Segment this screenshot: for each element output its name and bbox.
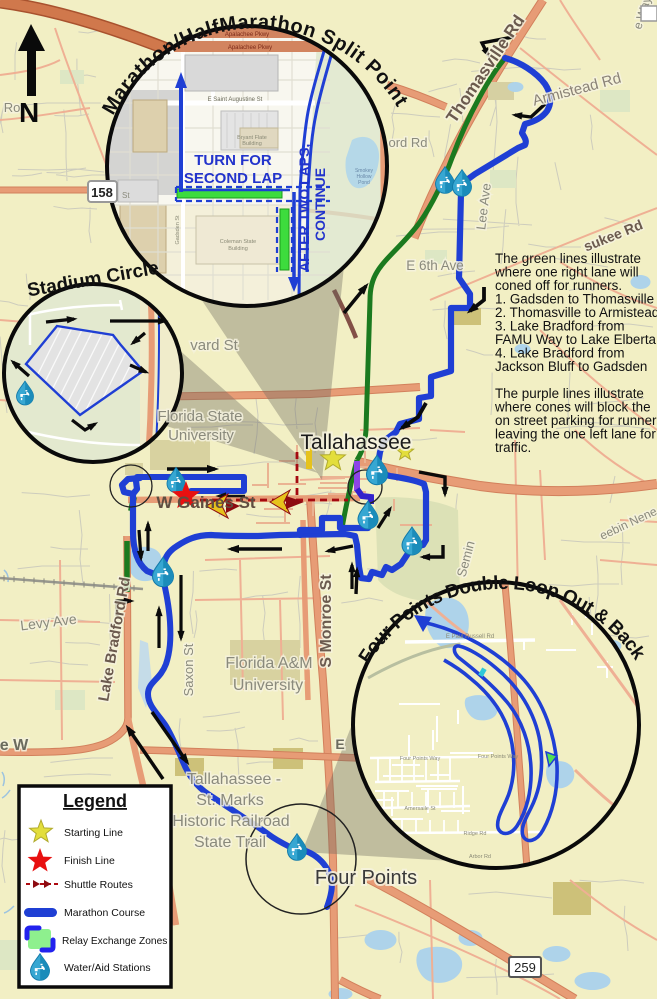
svg-text:S Monroe St: S Monroe St — [318, 574, 335, 668]
svg-text:E 6th Ave: E 6th Ave — [406, 258, 464, 273]
svg-text:TURN FOR: TURN FOR — [194, 152, 272, 169]
svg-text:St. Marks: St. Marks — [196, 792, 264, 809]
svg-text:ord Rd: ord Rd — [388, 135, 427, 150]
svg-text:Apalachee Pkwy: Apalachee Pkwy — [228, 45, 272, 51]
svg-text:Finish Line: Finish Line — [64, 855, 115, 867]
svg-text:Ridge Rd: Ridge Rd — [464, 831, 487, 837]
svg-text:Gadsden St: Gadsden St — [175, 215, 181, 245]
svg-text:Marathon Course: Marathon Course — [64, 907, 145, 919]
svg-text:Arbor Rd: Arbor Rd — [469, 854, 491, 860]
svg-text:Four Points Way: Four Points Way — [478, 754, 519, 760]
svg-text:University: University — [168, 427, 234, 444]
svg-text:AFTER TWO LAPS,: AFTER TWO LAPS, — [296, 144, 312, 272]
svg-text:St: St — [122, 191, 130, 200]
svg-text:E Saint Augustine St: E Saint Augustine St — [208, 97, 263, 103]
svg-text:University: University — [233, 677, 303, 694]
svg-text:Ro: Ro — [4, 100, 21, 115]
svg-text:Jackson Bluff to Gadsden: Jackson Bluff to Gadsden — [495, 359, 647, 374]
svg-text:Pond: Pond — [358, 180, 370, 186]
svg-text:SECOND LAP: SECOND LAP — [184, 170, 282, 187]
svg-text:Tallahassee: Tallahassee — [301, 431, 412, 454]
svg-text:E: E — [335, 736, 344, 752]
svg-text:Coleman State: Coleman State — [220, 239, 256, 245]
svg-text:158: 158 — [91, 185, 113, 200]
svg-text:Building: Building — [242, 141, 262, 147]
svg-text:Florida A&M: Florida A&M — [225, 655, 312, 672]
svg-text:Relay Exchange Zones: Relay Exchange Zones — [62, 936, 167, 947]
svg-text:State Trail: State Trail — [194, 834, 266, 851]
svg-text:259: 259 — [514, 960, 536, 975]
svg-text:Tallahassee -: Tallahassee - — [187, 771, 281, 788]
svg-text:Amersaile St: Amersaile St — [404, 806, 436, 812]
svg-text:W Gaines St: W Gaines St — [156, 493, 256, 512]
svg-text:Shuttle Routes: Shuttle Routes — [64, 879, 133, 891]
svg-text:traffic.: traffic. — [495, 440, 531, 455]
svg-text:Water/Aid Stations: Water/Aid Stations — [64, 962, 151, 974]
svg-text:Legend: Legend — [63, 791, 127, 811]
svg-text:e W: e W — [0, 737, 29, 754]
svg-text:Starting Line: Starting Line — [64, 827, 123, 839]
svg-text:CONTINUE: CONTINUE — [312, 168, 328, 241]
svg-text:Florida State: Florida State — [157, 408, 242, 425]
svg-text:Four Points Way: Four Points Way — [400, 756, 441, 762]
svg-text:Historic Railroad: Historic Railroad — [172, 813, 289, 830]
svg-text:Saxon St: Saxon St — [181, 643, 196, 696]
svg-text:N: N — [19, 97, 39, 128]
svg-text:E Paul Russell Rd: E Paul Russell Rd — [446, 634, 494, 640]
svg-text:vard St: vard St — [190, 337, 238, 354]
svg-text:Four Points: Four Points — [315, 867, 417, 889]
svg-text:Building: Building — [228, 246, 248, 252]
